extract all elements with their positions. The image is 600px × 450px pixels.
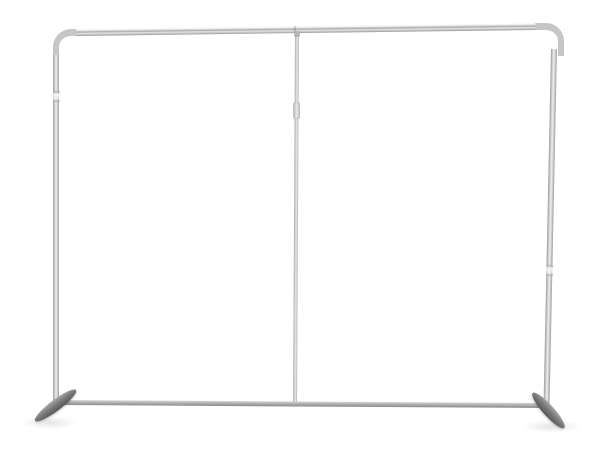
frame-top-bar — [76, 23, 536, 36]
center-pole-joint — [293, 103, 299, 118]
frame-corner-top-right — [534, 23, 564, 56]
left-foot-shadow — [20, 417, 78, 428]
product-photo-stage — [0, 0, 600, 450]
frame-right-upright — [543, 49, 557, 410]
frame-left-upright — [53, 55, 59, 410]
frame-center-pole — [293, 31, 298, 402]
center-pole-top-clamp — [293, 31, 299, 37]
left-upright-joint — [53, 91, 60, 102]
frame-bottom-bar — [57, 400, 548, 408]
right-upright-joint — [546, 265, 553, 276]
